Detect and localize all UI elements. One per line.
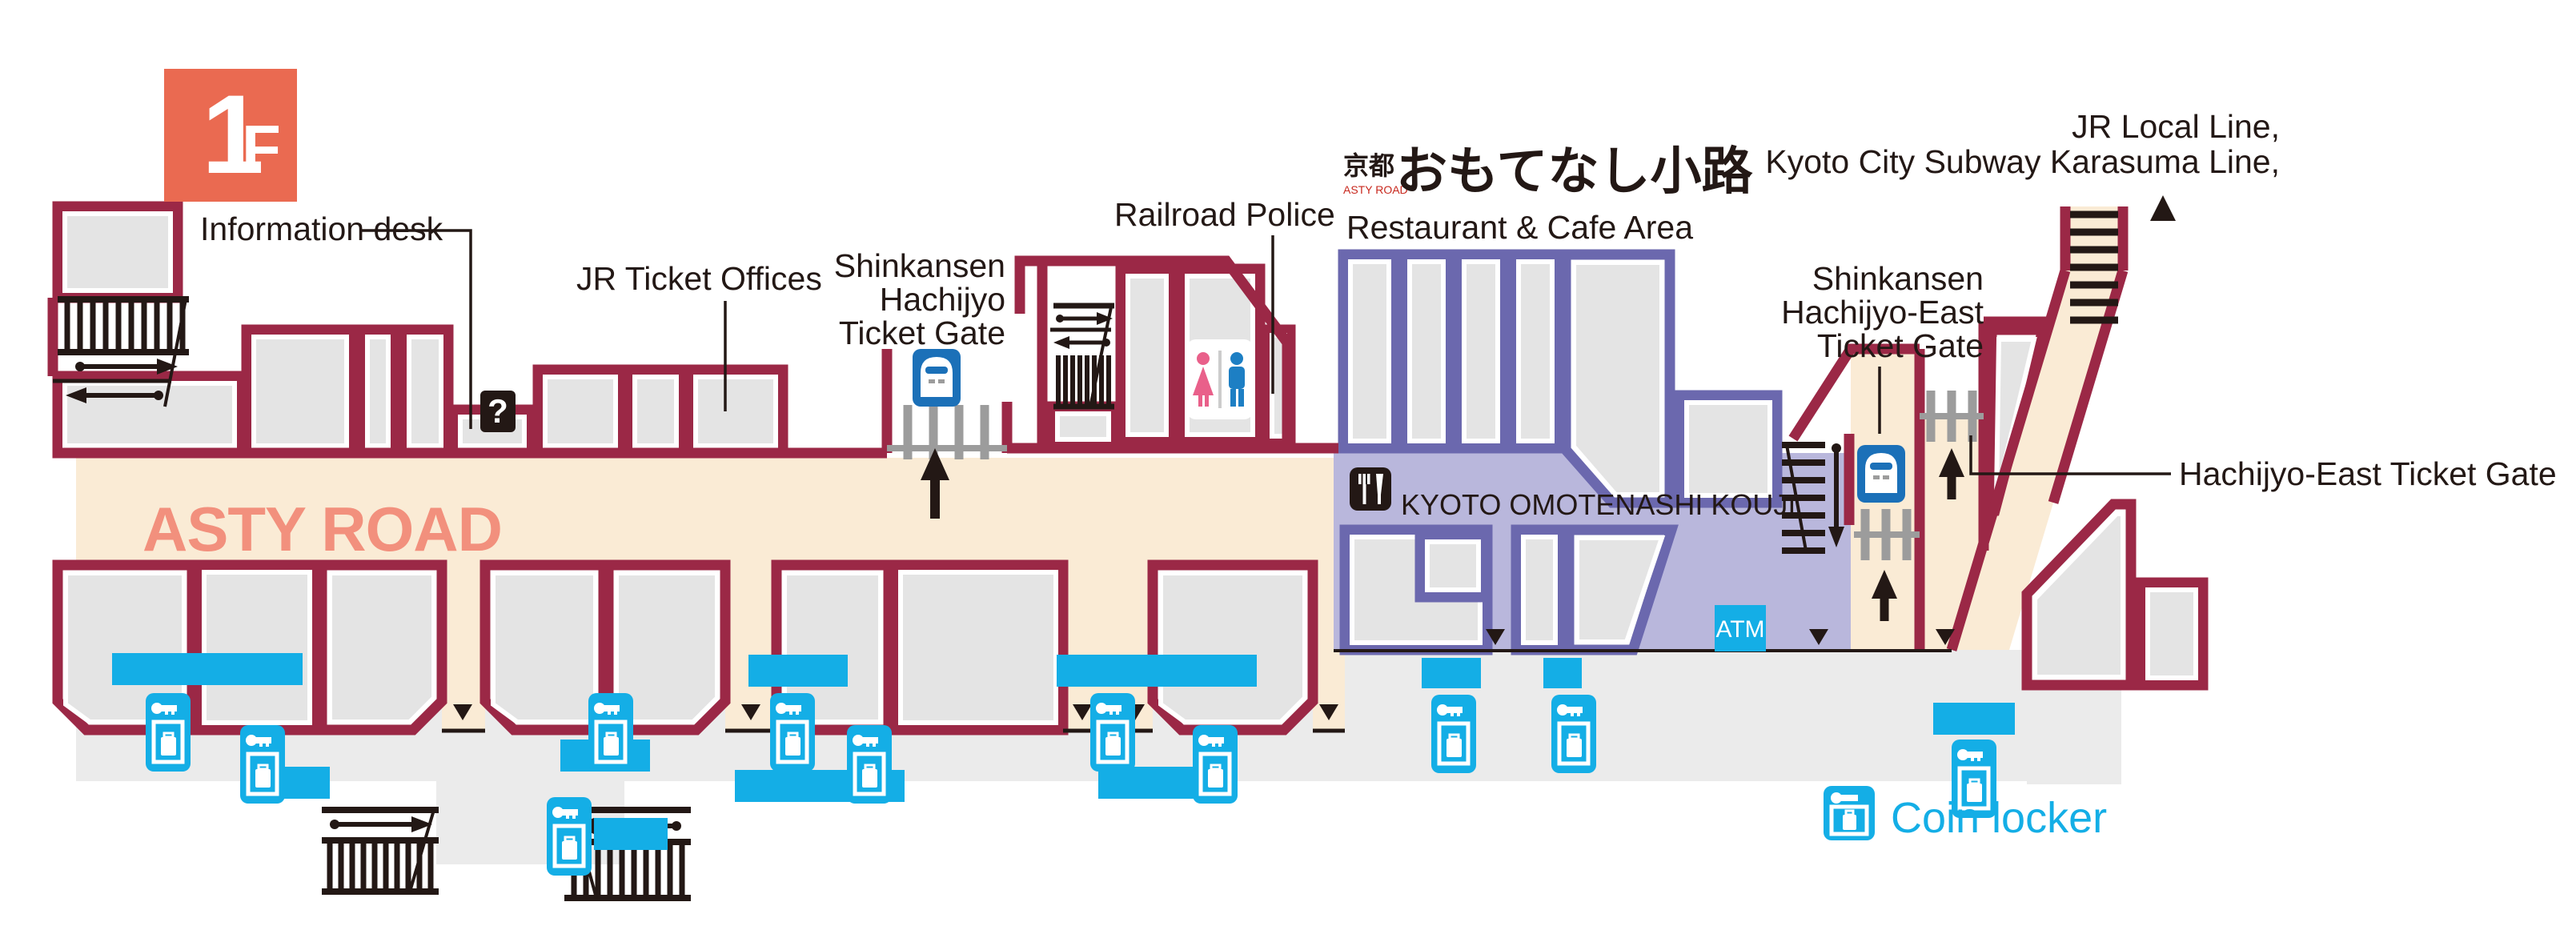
label-jr-ticket-offices: JR Ticket Offices — [576, 260, 822, 297]
label-shinkansen-heast-3: Ticket Gate — [1817, 327, 1984, 364]
legend-key — [1831, 792, 1842, 804]
female-leg — [1198, 395, 1202, 407]
label-shinkansen-heast-1: Shinkansen — [1812, 260, 1984, 297]
label-jr-local-line-2: Kyoto City Subway Karasuma Line, — [1765, 143, 2280, 180]
toilet-icon — [1186, 339, 1254, 419]
label-jr-local-line-1: JR Local Line, — [2072, 108, 2280, 145]
escalator-middle — [1050, 306, 1114, 407]
legend-suitcase — [1843, 815, 1856, 830]
stair-treads — [67, 301, 183, 351]
coin-locker-icon — [240, 725, 285, 804]
fork-tine — [1367, 474, 1370, 484]
coin-locker-icon — [1551, 695, 1596, 773]
stall-fill — [1410, 262, 1443, 441]
legend-coin-locker: Coin locker — [1824, 786, 2107, 842]
information-desk-icon: ? — [480, 391, 516, 432]
label-shinkansen-heast-2: Hachijyo-East — [1781, 294, 1984, 331]
fork-handle — [1363, 484, 1366, 504]
legend-key-bar — [1840, 795, 1858, 801]
label-shinkansen-hachijyo-3: Ticket Gate — [839, 315, 1005, 351]
shop-fill — [204, 572, 310, 723]
female-leg — [1205, 395, 1209, 407]
coin-locker-icon — [770, 693, 815, 772]
label-kyoto-omotenashi-kouji: KYOTO OMOTENASHI KOUJI — [1401, 488, 1796, 521]
label-information-desk: Information desk — [200, 210, 443, 247]
page: { "page": { "title": "Kyoto Station ASTY… — [0, 0, 2576, 942]
stall-fill — [1519, 262, 1552, 441]
coin-locker-bank — [748, 655, 848, 687]
shop-fill — [1427, 542, 1479, 590]
room-fill — [545, 377, 616, 446]
floor-badge: 1 F — [164, 69, 297, 202]
stall-fill — [1574, 263, 1662, 495]
shop-fill — [1523, 537, 1555, 643]
stair-treads — [2070, 214, 2118, 320]
question-mark-icon: ? — [488, 392, 508, 430]
stall-fill — [1464, 262, 1498, 441]
stall-fill — [1350, 262, 1389, 441]
label-shinkansen-hachijyo-2: Hachijyo — [880, 281, 1005, 318]
shop-fill — [901, 572, 1056, 723]
coin-locker-icon — [1090, 693, 1135, 772]
room-fill — [1128, 276, 1166, 435]
coin-locker-bank — [112, 653, 303, 685]
coin-locker-bank — [594, 818, 668, 850]
fork-tine — [1363, 474, 1366, 484]
label-hachijyo-east-gate: Hachijyo-East Ticket Gate — [2179, 455, 2557, 492]
knife-handle — [1378, 495, 1381, 504]
coin-locker-icon — [847, 725, 892, 804]
label-railroad-police: Railroad Police — [1114, 196, 1335, 233]
room-fill — [254, 337, 347, 446]
male-head — [1230, 352, 1243, 365]
room-fill — [367, 337, 388, 446]
escalator-arrow-head — [1053, 336, 1069, 349]
logo-calligraphy: おもてなし小路 — [1396, 142, 1753, 202]
shop-fill — [1161, 573, 1305, 722]
room-fill — [65, 383, 235, 446]
room-fill — [696, 377, 776, 446]
atm-label: ATM — [1715, 616, 1764, 643]
restaurant-icon — [1350, 467, 1391, 511]
coin-locker-icon — [547, 797, 592, 876]
shinkansen-icon — [1857, 445, 1905, 503]
shinkansen-icon — [913, 349, 961, 407]
fork-knife-icon-bg — [1350, 467, 1391, 511]
male-leg — [1230, 389, 1236, 407]
shop-fill — [493, 573, 596, 722]
legend-coin-locker-label: Coin locker — [1891, 794, 2107, 842]
room-fill — [65, 214, 171, 291]
coin-locker-bank — [1933, 703, 2015, 735]
escalator-bottom-left — [322, 810, 439, 892]
floor-badge-suffix: F — [242, 112, 281, 183]
atm-box: ATM — [1715, 605, 1766, 651]
room-fill — [2148, 590, 2196, 678]
room-fill — [409, 337, 441, 446]
logo-kanji-prefix: 京都 — [1343, 151, 1394, 180]
coin-locker-legend-icon — [1824, 786, 1875, 840]
coin-locker-bank — [1057, 655, 1257, 687]
label-asty-road: ASTY ROAD — [142, 494, 502, 564]
room-fill — [635, 377, 676, 446]
male-leg — [1238, 389, 1244, 407]
male-body — [1229, 367, 1245, 389]
stair-treads — [1058, 355, 1109, 405]
gray-floor-right — [2027, 685, 2121, 784]
coin-locker-bank — [1422, 658, 1481, 688]
coin-locker-icon — [1431, 695, 1476, 773]
coin-locker-icon — [1193, 725, 1238, 804]
fork-tine — [1358, 474, 1362, 484]
female-head — [1197, 352, 1210, 365]
stall-fill — [1687, 403, 1770, 495]
label-restaurant-cafe-area: Restaurant & Cafe Area — [1346, 209, 1693, 246]
coin-locker-bank — [1543, 658, 1582, 688]
coin-locker-icon — [146, 693, 191, 772]
floor-map: ? ATM — [0, 0, 2576, 942]
north-arrow — [2150, 195, 2176, 221]
label-shinkansen-hachijyo-1: Shinkansen — [834, 247, 1005, 284]
restaurant-logo: 京都 ASTY ROAD おもてなし小路 — [1343, 142, 1753, 202]
room-fill — [1057, 414, 1109, 439]
coin-locker-icon — [588, 693, 633, 772]
shop-fill — [330, 573, 434, 722]
